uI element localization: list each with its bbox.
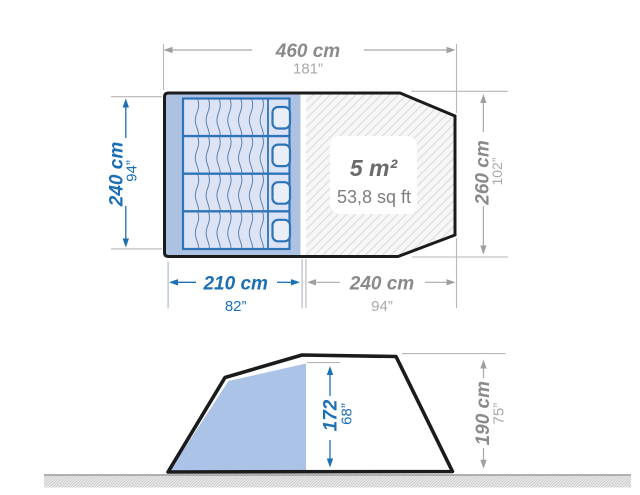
svg-text:94”: 94” bbox=[371, 298, 393, 315]
svg-text:94”: 94” bbox=[124, 160, 141, 182]
svg-text:240 cm: 240 cm bbox=[349, 274, 415, 295]
svg-text:5 m²: 5 m² bbox=[350, 155, 399, 181]
svg-text:68”: 68” bbox=[339, 403, 356, 425]
svg-text:82”: 82” bbox=[225, 298, 247, 315]
svg-text:181”: 181” bbox=[293, 61, 323, 78]
svg-text:460 cm: 460 cm bbox=[275, 41, 341, 62]
svg-text:53,8 sq ft: 53,8 sq ft bbox=[337, 187, 411, 207]
svg-text:210 cm: 210 cm bbox=[202, 274, 268, 295]
svg-text:102”: 102” bbox=[489, 157, 505, 185]
svg-text:75”: 75” bbox=[491, 403, 508, 425]
